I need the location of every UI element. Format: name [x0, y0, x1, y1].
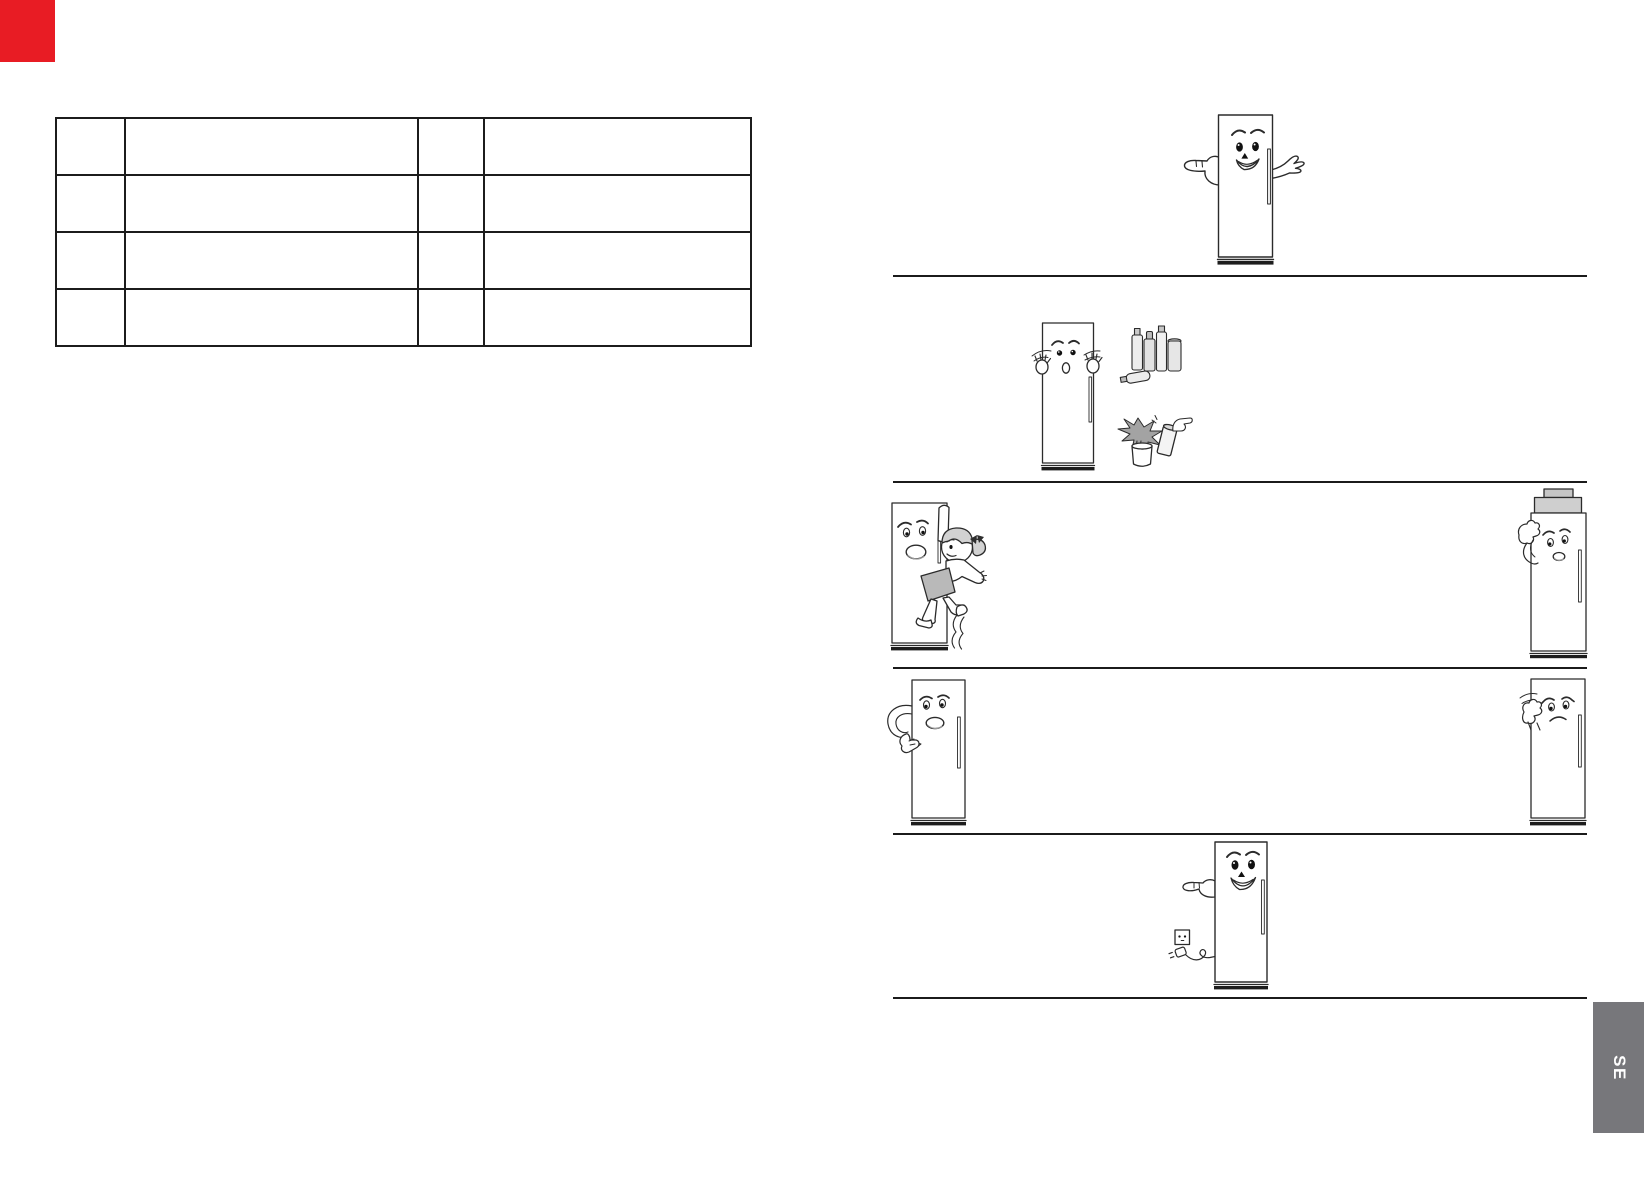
- red-print-corner-mark: [0, 0, 55, 62]
- table-cell: [125, 289, 418, 346]
- table-cell: [125, 175, 418, 232]
- table-cell: [125, 232, 418, 289]
- table-row: [56, 289, 751, 346]
- section-divider: [893, 997, 1587, 999]
- table-row: [56, 175, 751, 232]
- language-side-tab: SE: [1593, 1002, 1644, 1133]
- table-cell: [484, 289, 751, 346]
- table-cell: [56, 118, 125, 175]
- heavy-objects-on-top-illustration: [1505, 483, 1600, 663]
- table-cell: [56, 289, 125, 346]
- language-side-tab-label: SE: [1609, 1055, 1629, 1081]
- table-cell: [56, 175, 125, 232]
- table-cell: [484, 118, 751, 175]
- table-cell: [418, 175, 484, 232]
- section-divider: [893, 667, 1587, 669]
- fridge-flammables-illustration: [1020, 315, 1200, 472]
- accessible-plug-illustration: [1165, 835, 1295, 995]
- table-cell: [418, 232, 484, 289]
- table-cell: [125, 118, 418, 175]
- table-row: [56, 232, 751, 289]
- fridge-wiping-illustration: [1510, 672, 1600, 830]
- manual-page: SE: [0, 0, 1644, 1191]
- child-hanging-on-door-illustration: [885, 495, 1000, 655]
- fridge-presenting-illustration: [1180, 110, 1310, 268]
- table-cell: [484, 232, 751, 289]
- table-cell: [418, 118, 484, 175]
- section-divider: [893, 481, 1587, 483]
- table-cell: [418, 289, 484, 346]
- table-cell: [56, 232, 125, 289]
- section-divider: [893, 275, 1587, 277]
- table-cell: [484, 175, 751, 232]
- table-row: [56, 118, 751, 175]
- spec-table: [55, 117, 752, 347]
- fridge-arm-at-side-illustration: [880, 672, 975, 830]
